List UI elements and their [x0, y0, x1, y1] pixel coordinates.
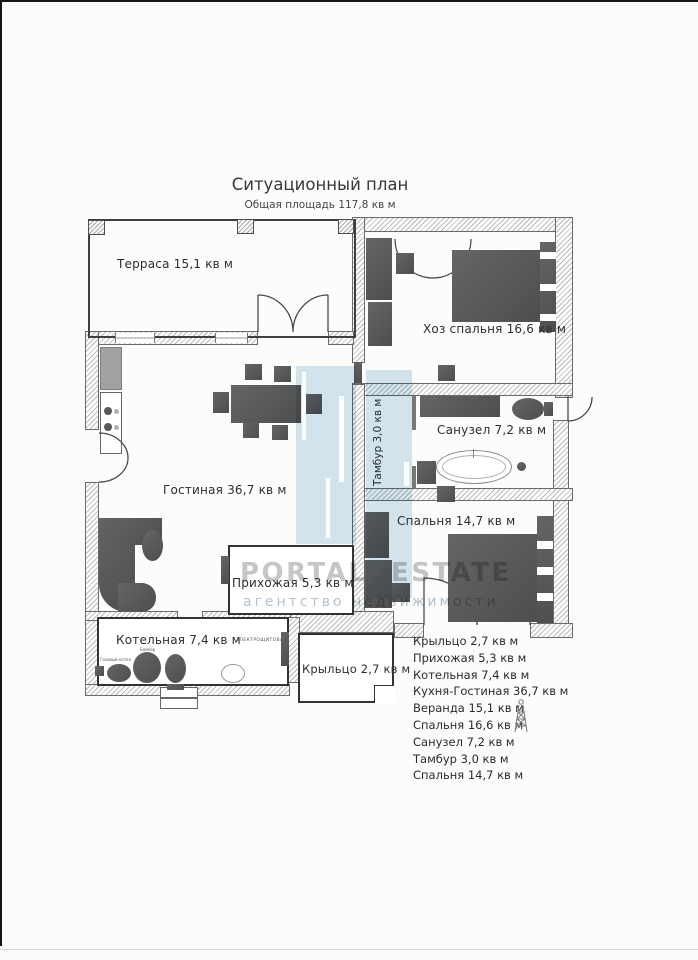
- chair: [272, 425, 288, 440]
- porch-step-notch: [374, 685, 394, 703]
- chair: [245, 364, 262, 380]
- wall-top: [352, 217, 573, 232]
- stove-burner: [114, 425, 119, 430]
- bed: [452, 250, 540, 322]
- scan-edge-left: [0, 0, 2, 946]
- bathroom-cabinet: [417, 461, 436, 484]
- antenna-tower-icon: [508, 698, 534, 734]
- floor-drain: [517, 462, 526, 471]
- toilet: [512, 398, 544, 420]
- terrace-label: Терраса 15,1 кв м: [117, 257, 233, 271]
- terrace-pillar: [237, 219, 254, 234]
- legend-item: Крыльцо 2,7 кв м: [413, 633, 568, 650]
- watermark-tagline: агентство недвижимости: [243, 594, 493, 610]
- terrace-double-door: [257, 294, 329, 333]
- scan-edge-bottom: [0, 949, 698, 950]
- watermark-logo-stripe: [326, 478, 330, 538]
- entrance-step: [160, 698, 198, 709]
- wall-tambour-bath-lower: [412, 466, 416, 488]
- wall-right-lower: [553, 420, 569, 628]
- floor-plan-page: Ситуационный план Общая площадь 117,8 кв…: [0, 0, 698, 960]
- legend-item: Котельная 7,4 кв м: [413, 667, 568, 684]
- bathroom-counter: [420, 396, 500, 417]
- coffee-table: [142, 530, 163, 561]
- water-heater-label: Бойлер: [140, 647, 155, 652]
- legend-item: Спальня 14,7 кв м: [413, 767, 568, 784]
- watermark-logo-stripe: [302, 372, 306, 440]
- legend-item: Веранда 15,1 кв м: [413, 700, 568, 717]
- plan-title: Ситуационный план: [110, 175, 530, 194]
- sofa: [118, 583, 156, 612]
- window-living-top-2: [215, 333, 248, 343]
- chair: [213, 392, 229, 413]
- pillow: [540, 252, 556, 259]
- fridge: [100, 347, 122, 390]
- toilet-tank: [544, 402, 553, 416]
- bedroom-label: Спальня 14,7 кв м: [397, 514, 515, 528]
- bathtub-faucet: [473, 449, 474, 458]
- watermark-logo-stripe: [404, 462, 409, 486]
- plan-subtitle: Общая площадь 117,8 кв м: [110, 199, 530, 211]
- wall-left-upper: [85, 331, 99, 430]
- pillow: [537, 593, 553, 601]
- pillow: [540, 284, 556, 291]
- meter-box: [95, 666, 104, 676]
- chair: [243, 423, 259, 438]
- wardrobe: [368, 302, 392, 346]
- electrical-panel-label: ЭЛЕКТРОЩИТОВАЯ: [236, 638, 287, 643]
- pillow: [537, 567, 553, 575]
- boiler-tank: [165, 654, 186, 683]
- bathtub-inner: [442, 455, 506, 479]
- legend-item: Тамбур 3,0 кв м: [413, 751, 568, 768]
- bathroom-exterior-door: [556, 394, 600, 424]
- boiler-room-label: Котельная 7,4 кв м: [116, 633, 241, 647]
- legend: Крыльцо 2,7 кв м Прихожая 5,3 кв м Котел…: [413, 633, 568, 784]
- wardrobe: [366, 238, 392, 300]
- dining-table: [231, 385, 301, 423]
- stove-burner: [104, 407, 112, 415]
- terrace-pillar: [88, 220, 105, 235]
- terrace-pillar: [338, 219, 354, 234]
- boiler-tank-base: [167, 684, 184, 690]
- nightstand: [396, 253, 414, 274]
- wall-right-upper: [555, 217, 573, 398]
- pillow: [537, 541, 553, 549]
- master-bedroom-label: Хоз спальня 16,6 кв м: [423, 322, 566, 336]
- legend-item: Санузел 7,2 кв м: [413, 734, 568, 751]
- watermark-logo-stripe: [339, 396, 344, 482]
- porch-label: Крыльцо 2,7 кв м: [302, 662, 390, 676]
- window-living-top-1: [115, 333, 155, 343]
- watermark-brand: PORTAL ESTATE: [240, 558, 490, 588]
- expansion-tank: [221, 664, 245, 683]
- bathroom-label: Санузел 7,2 кв м: [437, 423, 546, 437]
- stove-burner: [104, 423, 112, 431]
- wall-pier: [437, 486, 455, 502]
- water-heater: [133, 652, 161, 683]
- gas-boiler-label: Газовый котел: [100, 657, 131, 662]
- chair: [274, 366, 291, 382]
- gas-boiler: [107, 664, 131, 682]
- hallway-door-leaf: [221, 556, 229, 584]
- scan-edge-top: [0, 0, 698, 2]
- legend-item: Спальня 16,6 кв м: [413, 717, 568, 734]
- legend-item: Прихожая 5,3 кв м: [413, 650, 568, 667]
- stove-burner: [114, 409, 119, 414]
- wall-tambour-bath-upper: [412, 396, 416, 430]
- legend-item: Кухня-Гостиная 36,7 кв м: [413, 683, 568, 700]
- pillow: [540, 314, 556, 321]
- kitchen-garden-door: [98, 432, 130, 483]
- living-room-label: Гостиная 36,7 кв м: [163, 483, 287, 497]
- nightstand: [438, 365, 455, 381]
